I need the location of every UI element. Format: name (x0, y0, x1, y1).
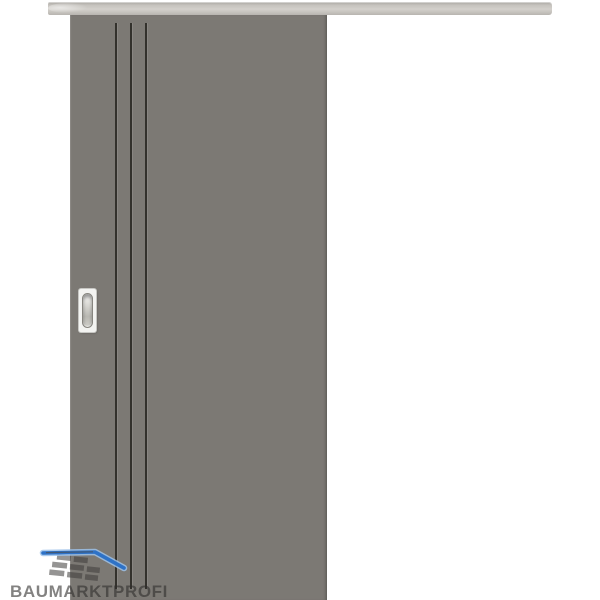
groove-line (130, 23, 132, 589)
brand-watermark-text: BAUMARKTPROFI (10, 582, 168, 600)
handle-recess (82, 293, 93, 328)
flush-pull-handle (79, 289, 96, 332)
roof-swoosh-core (46, 552, 93, 553)
product-image: BAUMARKTPROFI (0, 0, 600, 600)
groove-line (145, 23, 147, 589)
groove-line (115, 23, 117, 589)
bricks-icon (49, 553, 101, 581)
sliding-rail (48, 2, 552, 15)
door-panel (70, 15, 327, 600)
